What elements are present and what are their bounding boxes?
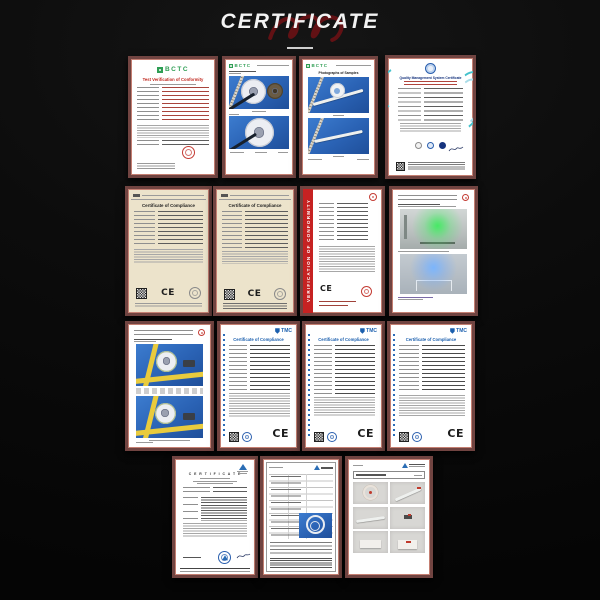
product-photo-box-1	[353, 531, 388, 553]
header-line	[257, 65, 289, 66]
subtitle-lines	[404, 81, 457, 87]
certificate-bctc-photos-2: BCTC Photographs of Samples	[299, 56, 378, 178]
logo-caption	[409, 464, 425, 466]
field-labels	[137, 87, 159, 123]
report-title-bar	[353, 471, 425, 479]
sample-photo-reel	[229, 116, 289, 149]
marks-row: CE	[136, 287, 201, 299]
tmc-shield-icon	[275, 328, 280, 334]
qr-code	[399, 432, 409, 442]
footer-lines	[408, 162, 465, 171]
form-header	[269, 465, 333, 470]
red-detail	[369, 491, 372, 494]
issuer-logo	[133, 194, 140, 197]
certificate-bctc-photos-1: BCTC	[222, 56, 296, 178]
ce-mark: CE	[248, 289, 262, 299]
footer-line	[319, 301, 356, 302]
certificate-voc-vertical: VERIFICATION OF CONFORMITY CE	[300, 186, 385, 316]
paragraph-lines	[399, 395, 465, 417]
qr-code	[136, 288, 147, 299]
field-labels	[399, 345, 419, 393]
product-photo-coil	[353, 482, 388, 504]
certificate-tuv: C E R T I F I C A T E	[172, 456, 258, 578]
report-photo-grid	[345, 456, 433, 578]
field-values	[162, 87, 209, 123]
triangle-stamp-icon	[218, 551, 231, 564]
blue-stamp-icon	[242, 432, 252, 442]
report-sample-photos-blue-yellow	[125, 321, 214, 451]
footer-line	[398, 297, 433, 298]
paragraph-lines	[314, 397, 375, 417]
footer-line	[149, 440, 191, 441]
form-border	[266, 462, 336, 572]
fields-block-2	[137, 140, 209, 148]
product-photo-connector	[390, 507, 425, 529]
footer-line	[357, 159, 369, 160]
header-rule	[219, 199, 291, 200]
footer-lines	[180, 571, 250, 573]
certificate-bctc-verification: BCTC Test Verification of Conformity	[128, 56, 218, 178]
banner-text: VERIFICATION OF CONFORMITY	[306, 199, 311, 302]
qms-seal-icon	[425, 63, 436, 74]
tmc-logo: TMC	[360, 328, 377, 334]
field-labels	[137, 140, 159, 148]
table-edge	[420, 242, 455, 244]
field-values	[213, 487, 247, 495]
header-rule	[131, 199, 206, 200]
triangle-logo	[402, 463, 426, 468]
report-page-text	[414, 475, 422, 476]
qr-code	[314, 432, 324, 442]
doc-header	[133, 194, 204, 197]
photo-grid	[353, 482, 425, 553]
certificate-qms: Quality Management System Certificate	[385, 55, 476, 179]
field-labels	[229, 345, 247, 391]
triangle-logo-icon	[239, 464, 247, 470]
certificate-title: Certificate of Compliance	[305, 337, 382, 342]
field-labels	[398, 88, 421, 122]
photo-caption	[333, 156, 345, 157]
photo-caption	[252, 111, 266, 112]
white-box	[360, 540, 381, 548]
tmc-logo: TMC	[450, 328, 467, 334]
certificate-title: Certificate of Compliance	[216, 203, 294, 208]
photo-green-light-test	[400, 209, 467, 249]
tmc-logo-text: TMC	[456, 328, 467, 334]
logo-caption	[409, 466, 425, 467]
accreditation-badge-icon	[427, 142, 434, 149]
subtitle-line	[197, 483, 233, 484]
triangle-logo-icon	[402, 463, 408, 468]
caption-line	[134, 341, 156, 342]
accreditation-badge-icon	[439, 142, 446, 149]
triangle-logo-icon	[314, 465, 320, 470]
fields-block	[399, 345, 465, 393]
vertical-edge-text	[223, 334, 225, 438]
certificate-title: Certificate of Compliance	[220, 337, 297, 342]
field-labels	[183, 487, 210, 495]
led-reel	[245, 118, 274, 147]
fields-block	[137, 87, 209, 123]
vertical-edge-text	[393, 334, 395, 438]
logo-captions	[409, 464, 425, 468]
bctc-logo-icon	[306, 64, 310, 68]
footer-line	[255, 152, 267, 153]
doc-body: CE	[317, 193, 378, 309]
ce-mark: CE	[320, 284, 332, 293]
ce-mark: CE	[357, 427, 374, 440]
footer-lines	[137, 163, 175, 169]
header-line	[142, 195, 204, 196]
qr-code	[229, 432, 239, 442]
led-reel	[156, 351, 177, 372]
qr-code	[396, 162, 405, 171]
red-detail	[417, 487, 421, 489]
tmc-shield-icon	[450, 328, 455, 334]
shelf	[404, 215, 407, 239]
doc-header	[221, 194, 289, 197]
cell-text	[271, 476, 301, 537]
bctc-logo-icon	[157, 67, 163, 73]
marks-left	[314, 432, 337, 442]
field-values	[158, 211, 203, 247]
fields-block	[314, 345, 375, 395]
marks-left	[399, 432, 422, 442]
doc-header	[398, 194, 469, 201]
caption-line	[398, 251, 449, 252]
field-values	[245, 211, 288, 249]
issuer-logo-icon	[369, 193, 377, 201]
certificate-of-compliance-1: Certificate of Compliance CE	[125, 186, 212, 316]
field-values	[335, 345, 375, 395]
watermark-text	[136, 388, 203, 394]
photos-title: Photographs of Samples	[302, 71, 375, 75]
paragraph-lines	[183, 523, 247, 538]
blue-label-dot	[334, 88, 340, 94]
blue-stamp-icon	[412, 432, 422, 442]
report-title-text	[356, 474, 386, 476]
dark-reel	[267, 83, 283, 99]
issuer-logo-icon	[198, 329, 205, 336]
field-values	[250, 345, 290, 391]
vertical-edge-text	[308, 334, 310, 438]
section-label	[229, 71, 256, 72]
paragraph-lines	[137, 125, 209, 138]
fields-block	[134, 211, 203, 247]
header-line	[336, 65, 371, 66]
sample-photo-reels	[229, 76, 289, 109]
doc-header	[353, 463, 425, 468]
bctc-logo-text: BCTC	[165, 66, 189, 73]
tmc-logo: TMC	[275, 328, 292, 334]
report-test-setup-photos	[389, 186, 478, 316]
footer-line	[136, 442, 153, 443]
certificate-banner: CERTIFICATE BCTC Test Verification of Co…	[0, 0, 600, 600]
bctc-logo-icon	[229, 64, 233, 68]
certificate-title: Certificate of Compliance	[128, 203, 209, 208]
product-photo-strip	[353, 507, 388, 529]
issuer-logo-icon	[462, 194, 469, 201]
led-reel	[155, 403, 176, 424]
summary-table	[270, 542, 332, 556]
field-values	[422, 345, 465, 393]
footer-line	[230, 152, 244, 153]
bctc-logo: BCTC	[131, 66, 215, 73]
caption-line	[398, 206, 456, 207]
bctc-logo-text: BCTC	[312, 63, 329, 68]
title-underline	[287, 47, 313, 49]
sample-photo-strip-2	[308, 118, 369, 154]
subtitle-line	[150, 84, 196, 85]
certificate-tmc-1: TMC Certificate of Compliance CE	[217, 321, 300, 451]
subtitle-line	[200, 478, 230, 479]
qms-title: Quality Management System Certificate	[398, 76, 463, 80]
footer-line	[398, 299, 423, 300]
header-line	[230, 195, 289, 196]
strip	[356, 516, 385, 523]
address-block	[183, 497, 247, 521]
paragraph-lines	[319, 246, 375, 272]
qr-code	[224, 289, 235, 300]
logo-caption	[239, 473, 247, 474]
sample-photo-coil	[299, 513, 332, 538]
tmc-shield-icon	[360, 328, 365, 334]
led-strip-white	[314, 130, 362, 143]
trestle-table	[416, 280, 452, 291]
field-labels	[314, 345, 332, 395]
subtitle-line	[193, 481, 237, 482]
field-values	[201, 497, 247, 521]
footer-lines	[223, 303, 287, 309]
doc-header: BCTC	[229, 63, 289, 68]
registration-rows	[183, 487, 247, 495]
red-banner: VERIFICATION OF CONFORMITY	[303, 189, 313, 313]
field-labels	[183, 497, 198, 521]
doc-header	[134, 329, 205, 336]
ce-mark: CE	[272, 427, 289, 440]
marks-left	[229, 432, 252, 442]
paragraph-lines	[229, 393, 290, 417]
blue-stamp-icon	[327, 432, 337, 442]
red-detail	[406, 541, 411, 543]
footer-line	[308, 159, 322, 160]
logo-caption	[321, 467, 333, 469]
ce-mark: CE	[161, 288, 175, 298]
footer-lines	[135, 303, 202, 308]
certificate-tmc-3: TMC Certificate of Compliance CE	[387, 321, 475, 451]
ce-mark: CE	[447, 427, 464, 440]
triangle-logo	[237, 464, 248, 474]
ruler	[308, 77, 324, 113]
photo-blue-light-test	[400, 254, 467, 294]
field-values	[337, 203, 368, 243]
round-stamp-icon	[189, 287, 201, 299]
round-stamp-icon	[274, 288, 286, 300]
field-labels	[222, 211, 242, 249]
paragraph-lines	[134, 249, 203, 263]
fields-block	[319, 203, 368, 243]
field-labels	[134, 211, 155, 247]
photo-caption	[333, 115, 345, 116]
field-labels	[319, 203, 334, 243]
certificate-tmc-2: TMC Certificate of Compliance CE	[302, 321, 385, 451]
bctc-logo-text: BCTC	[235, 63, 252, 68]
red-stamp-icon	[361, 286, 372, 297]
certificate-title: Certificate of Compliance	[390, 337, 472, 342]
date-line	[183, 557, 201, 558]
footer	[230, 152, 288, 153]
tmc-logo-text: TMC	[366, 328, 377, 334]
photo-reel-psu-1	[136, 344, 203, 386]
footer	[308, 159, 369, 160]
header: CERTIFICATE	[0, 10, 600, 56]
product-photo-strip-diagonal	[390, 482, 425, 504]
header-lines	[398, 195, 457, 200]
section-label	[134, 339, 172, 340]
footer-line	[319, 305, 348, 306]
sample-photo-strip-1	[308, 77, 369, 113]
caption-line	[229, 114, 239, 115]
triangle-logo	[314, 465, 334, 470]
result-band	[270, 558, 332, 568]
caption-line	[229, 73, 241, 74]
strip	[394, 487, 420, 501]
red-detail	[408, 514, 411, 516]
product-photo-box-2	[390, 531, 425, 553]
fields-block	[229, 345, 290, 391]
coil-ring	[310, 521, 320, 531]
footer-line	[278, 152, 288, 153]
accreditation-badge-icon	[415, 142, 422, 149]
photo-reel-psu-2	[136, 396, 203, 438]
paragraph-lines	[222, 251, 288, 264]
header-line	[353, 465, 363, 466]
certificate-of-compliance-2: Certificate of Compliance CE	[213, 186, 297, 316]
certificate-title: Test Verification of Conformity	[131, 77, 215, 82]
header-line	[269, 467, 283, 468]
report-form-sample	[260, 456, 342, 578]
tmc-logo-text: TMC	[281, 328, 292, 334]
bottom-rule	[180, 568, 250, 569]
header-lines	[134, 330, 193, 335]
marks-row: CE	[224, 288, 286, 300]
power-supply	[183, 360, 195, 367]
section-label	[398, 204, 440, 205]
signature	[448, 145, 464, 153]
fields-block	[222, 211, 288, 249]
triangle-icon	[222, 555, 228, 560]
logo-caption	[237, 471, 248, 472]
ruler	[308, 118, 324, 154]
power-supply	[183, 413, 195, 420]
issuer-logo	[221, 194, 228, 197]
signature	[236, 552, 251, 560]
doc-header: BCTC	[306, 63, 371, 68]
page-title: CERTIFICATE	[0, 10, 600, 34]
red-stamp-icon	[182, 146, 195, 159]
